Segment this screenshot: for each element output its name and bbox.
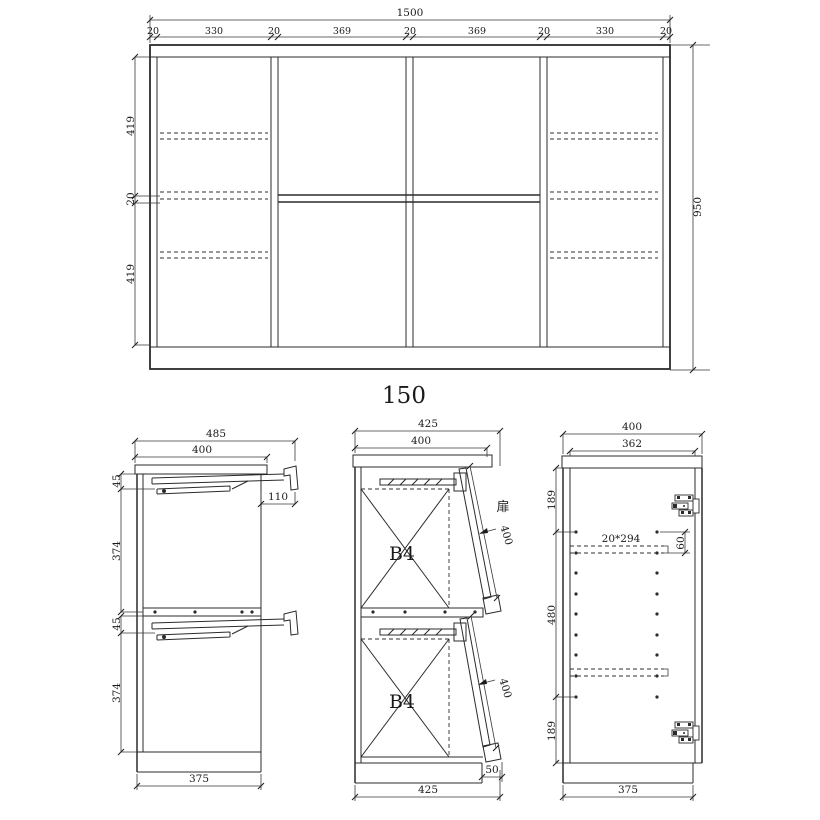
top-panel [562, 456, 702, 468]
label-b4-upper: B4 [389, 543, 415, 565]
upper-door-ajar [459, 468, 491, 599]
dim-left-bottom-width: 375 [189, 773, 209, 785]
right-view-dimension-lines [556, 434, 702, 801]
dim-mid-bottom-width: 425 [418, 784, 438, 796]
leader-arrowhead [478, 679, 487, 685]
body-outline [355, 467, 483, 783]
upper-flap-door-open [152, 474, 284, 484]
front-dimension-lines [135, 15, 710, 370]
adjustable-shelf-dashed [570, 546, 664, 676]
adjustable-shelf-dashed-right [550, 133, 658, 258]
lower-flap-door-open [152, 619, 284, 629]
dim-front-height-total: 950 [692, 197, 704, 217]
cabinet-dimension-drawing: 1500 20 330 20 369 20 369 20 330 20 419 … [0, 0, 820, 820]
dim-right-top-inner: 362 [622, 438, 642, 450]
upper-stay-hatch [388, 479, 442, 485]
dim-front-chain-1: 330 [205, 26, 223, 37]
fixed-middle-shelf [278, 195, 540, 202]
middle-shelf [361, 608, 483, 617]
dim-front-chain-3: 369 [333, 26, 351, 37]
label-b4-lower: B4 [389, 691, 415, 713]
dim-left-top-inner: 400 [192, 444, 212, 456]
screw-dot [443, 610, 446, 613]
dim-front-width-total: 1500 [397, 7, 424, 19]
dim-front-chain-6: 20 [538, 26, 550, 37]
screw-dot [371, 610, 374, 613]
stay-pivot [162, 489, 166, 493]
stay-pivot [162, 635, 166, 639]
cabinet-outline [150, 45, 670, 369]
dim-door-upper: 400 [498, 524, 515, 547]
dim-mid-bottom-offset: 50 [485, 764, 498, 776]
screw-dot [193, 610, 196, 613]
adjustable-shelf-dashed-left [160, 133, 268, 258]
dim-front-chain-4: 20 [404, 26, 416, 37]
top-panel [135, 465, 267, 474]
screw-dot [250, 610, 253, 613]
dim-mid-top-total: 425 [418, 418, 438, 430]
dim-front-chain-8: 20 [660, 26, 672, 37]
dim-mid-top-inner: 400 [411, 435, 431, 447]
front-elevation: 1500 20 330 20 369 20 369 20 330 20 419 … [125, 7, 710, 409]
dim-right-seg-mid: 480 [546, 605, 558, 625]
label-door: 扉 [496, 499, 509, 515]
dim-right-seg-upper: 189 [546, 490, 558, 510]
lower-door-hook [284, 611, 298, 635]
dim-right-seg-lower: 189 [546, 721, 558, 741]
upper-door-hook [284, 466, 298, 490]
drawing-title: 150 [382, 383, 426, 409]
shelf-end-brackets [664, 546, 668, 676]
dim-right-bottom-width: 375 [618, 784, 638, 796]
left-side-view: 485 400 45 374 110 45 374 375 [111, 428, 298, 790]
center-section-view: B4 扉 400 B4 400 425 400 50 425 [352, 418, 515, 801]
mid-view-dimension-lines [355, 431, 502, 801]
shelf-pin-holes [574, 530, 658, 698]
dim-front-chain-7: 330 [596, 26, 614, 37]
dim-front-chain-2: 20 [268, 26, 280, 37]
dim-left-height-upper: 374 [111, 541, 123, 561]
screw-dot [240, 610, 243, 613]
dim-left-gap-upper: 45 [111, 474, 123, 487]
screw-dot [153, 610, 156, 613]
dim-front-left-2: 419 [125, 264, 137, 284]
dim-front-chain-0: 20 [147, 26, 159, 37]
dim-left-top-total: 485 [206, 428, 226, 440]
dim-front-chain-5: 369 [468, 26, 486, 37]
dim-left-height-lower: 374 [111, 683, 123, 703]
label-pitch: 20*294 [602, 533, 641, 545]
dim-left-door-overhang: 110 [268, 491, 288, 503]
lower-stay-hatch [388, 629, 442, 635]
right-side-view: 20*294 400 362 189 480 189 60 375 [546, 421, 705, 801]
dim-right-shelf-gap: 60 [675, 536, 687, 549]
dim-front-left-1: 20 [125, 192, 137, 205]
upper-door-hook [483, 595, 501, 614]
dim-right-top-total: 400 [622, 421, 642, 433]
screw-dot [403, 610, 406, 613]
dim-left-gap-lower: 45 [111, 617, 123, 630]
leader-arrowhead [479, 528, 488, 534]
dim-front-left-0: 419 [125, 116, 137, 136]
dim-door-lower: 400 [497, 677, 514, 700]
drawing-canvas: 1500 20 330 20 369 20 369 20 330 20 419 … [0, 0, 820, 820]
